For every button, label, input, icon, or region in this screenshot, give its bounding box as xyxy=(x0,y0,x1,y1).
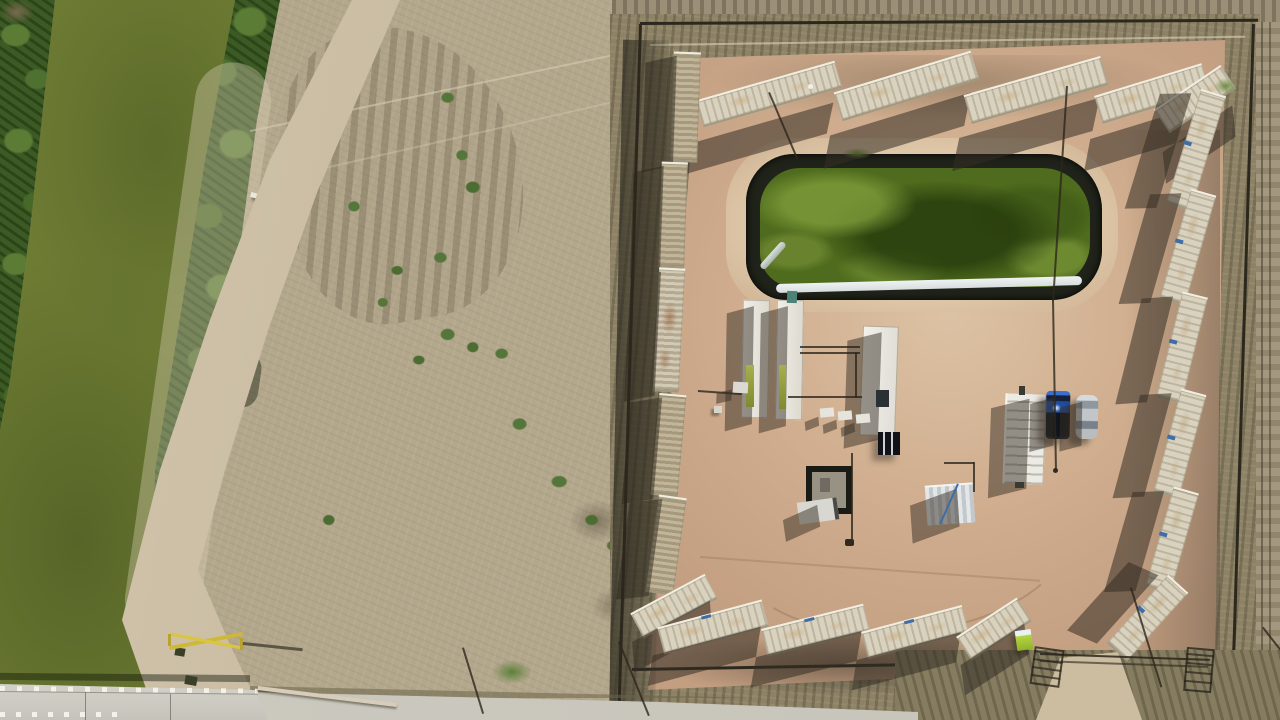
cellar-block xyxy=(820,478,830,492)
pipe xyxy=(800,352,860,354)
corner-dirt-blob xyxy=(0,0,34,24)
trailer-hitch xyxy=(1019,386,1025,395)
yellow-pipe-gate xyxy=(169,628,242,654)
small-box xyxy=(714,406,722,413)
gate-frame xyxy=(1183,647,1215,693)
container xyxy=(658,162,688,269)
pipe-claw xyxy=(845,539,854,546)
pipe xyxy=(788,396,862,398)
culvert xyxy=(184,675,197,686)
pipe xyxy=(851,453,853,539)
black-unit xyxy=(878,432,900,455)
tank-lime-strip-b xyxy=(779,365,786,409)
manifold-chip xyxy=(820,407,835,417)
aerial-photo-well-pad xyxy=(0,0,1280,720)
container xyxy=(670,52,701,163)
bushes-field xyxy=(300,40,660,680)
trailer-axle xyxy=(1015,482,1024,488)
manifold-chip xyxy=(838,410,853,420)
bridge-guardrail-lower xyxy=(0,712,120,717)
gate-post xyxy=(168,634,171,646)
lime-green-unit xyxy=(1015,629,1034,651)
pipe xyxy=(855,352,857,398)
scrub-right-strip xyxy=(1256,22,1280,720)
pipe xyxy=(944,462,974,464)
white-dot xyxy=(808,84,813,89)
gate-frame xyxy=(1030,646,1065,688)
sedan-silver xyxy=(1076,395,1099,439)
bridge-joint xyxy=(170,694,171,720)
white-skid-box xyxy=(733,382,749,394)
pipe xyxy=(800,346,860,348)
ring-green-blob xyxy=(1214,78,1238,94)
manifold-chip xyxy=(856,413,871,423)
trailer-dark-hatch xyxy=(876,390,889,407)
pipe xyxy=(973,462,975,492)
pond-water xyxy=(760,168,1090,287)
teal-box xyxy=(787,291,797,303)
pole-base xyxy=(1053,468,1058,473)
verge-green-bush xyxy=(492,660,532,684)
